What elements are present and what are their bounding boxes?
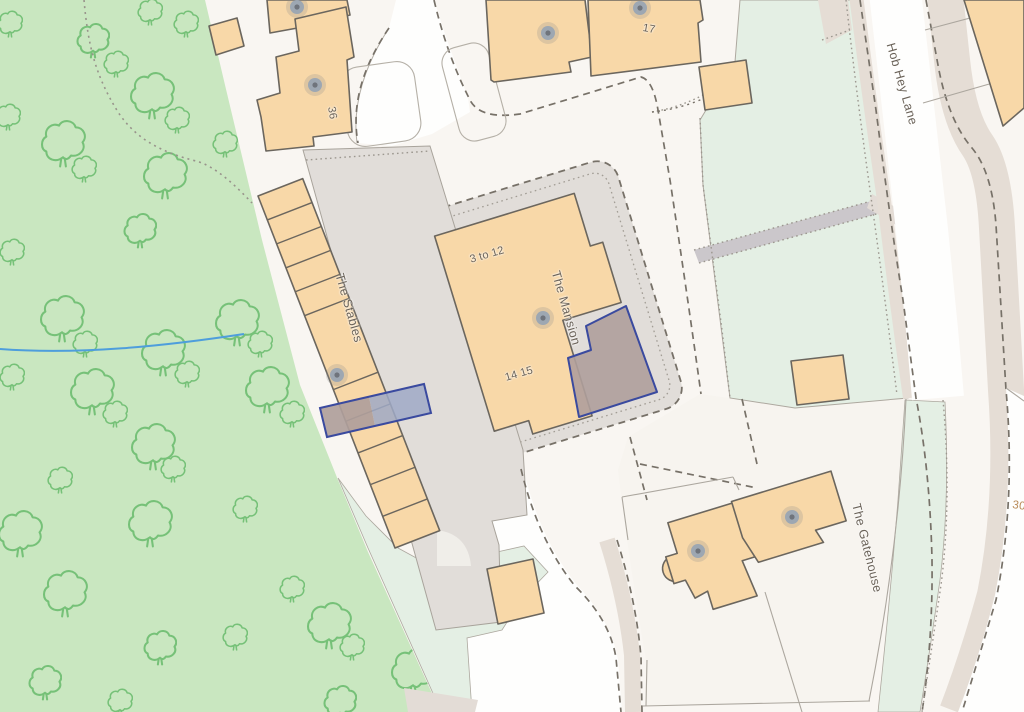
- building-marker-icon: [304, 74, 326, 96]
- building-marker-icon: [532, 307, 554, 329]
- building-marker-icon: [781, 506, 803, 528]
- marker-circle: [294, 4, 299, 9]
- map-canvas: [0, 0, 1024, 712]
- marker-circle: [334, 372, 339, 377]
- building-17-outbuilding: [699, 60, 752, 110]
- site-map[interactable]: Hob Hey Lane The Stables The Mansion The…: [0, 0, 1024, 712]
- building-marker-icon: [537, 22, 559, 44]
- marker-circle: [545, 30, 550, 35]
- label-no-36: 36: [325, 106, 339, 121]
- marker-circle: [789, 514, 794, 519]
- building-garage-east: [791, 355, 849, 405]
- building-marker-icon: [687, 540, 709, 562]
- label-no-17: 17: [642, 22, 657, 36]
- building-outbuilding-south: [487, 559, 544, 624]
- marker-circle: [695, 548, 700, 553]
- marker-circle: [637, 5, 642, 10]
- building-marker-icon: [326, 364, 348, 386]
- marker-circle: [540, 315, 545, 320]
- label-no-30: 30: [1012, 499, 1024, 513]
- marker-circle: [312, 82, 317, 87]
